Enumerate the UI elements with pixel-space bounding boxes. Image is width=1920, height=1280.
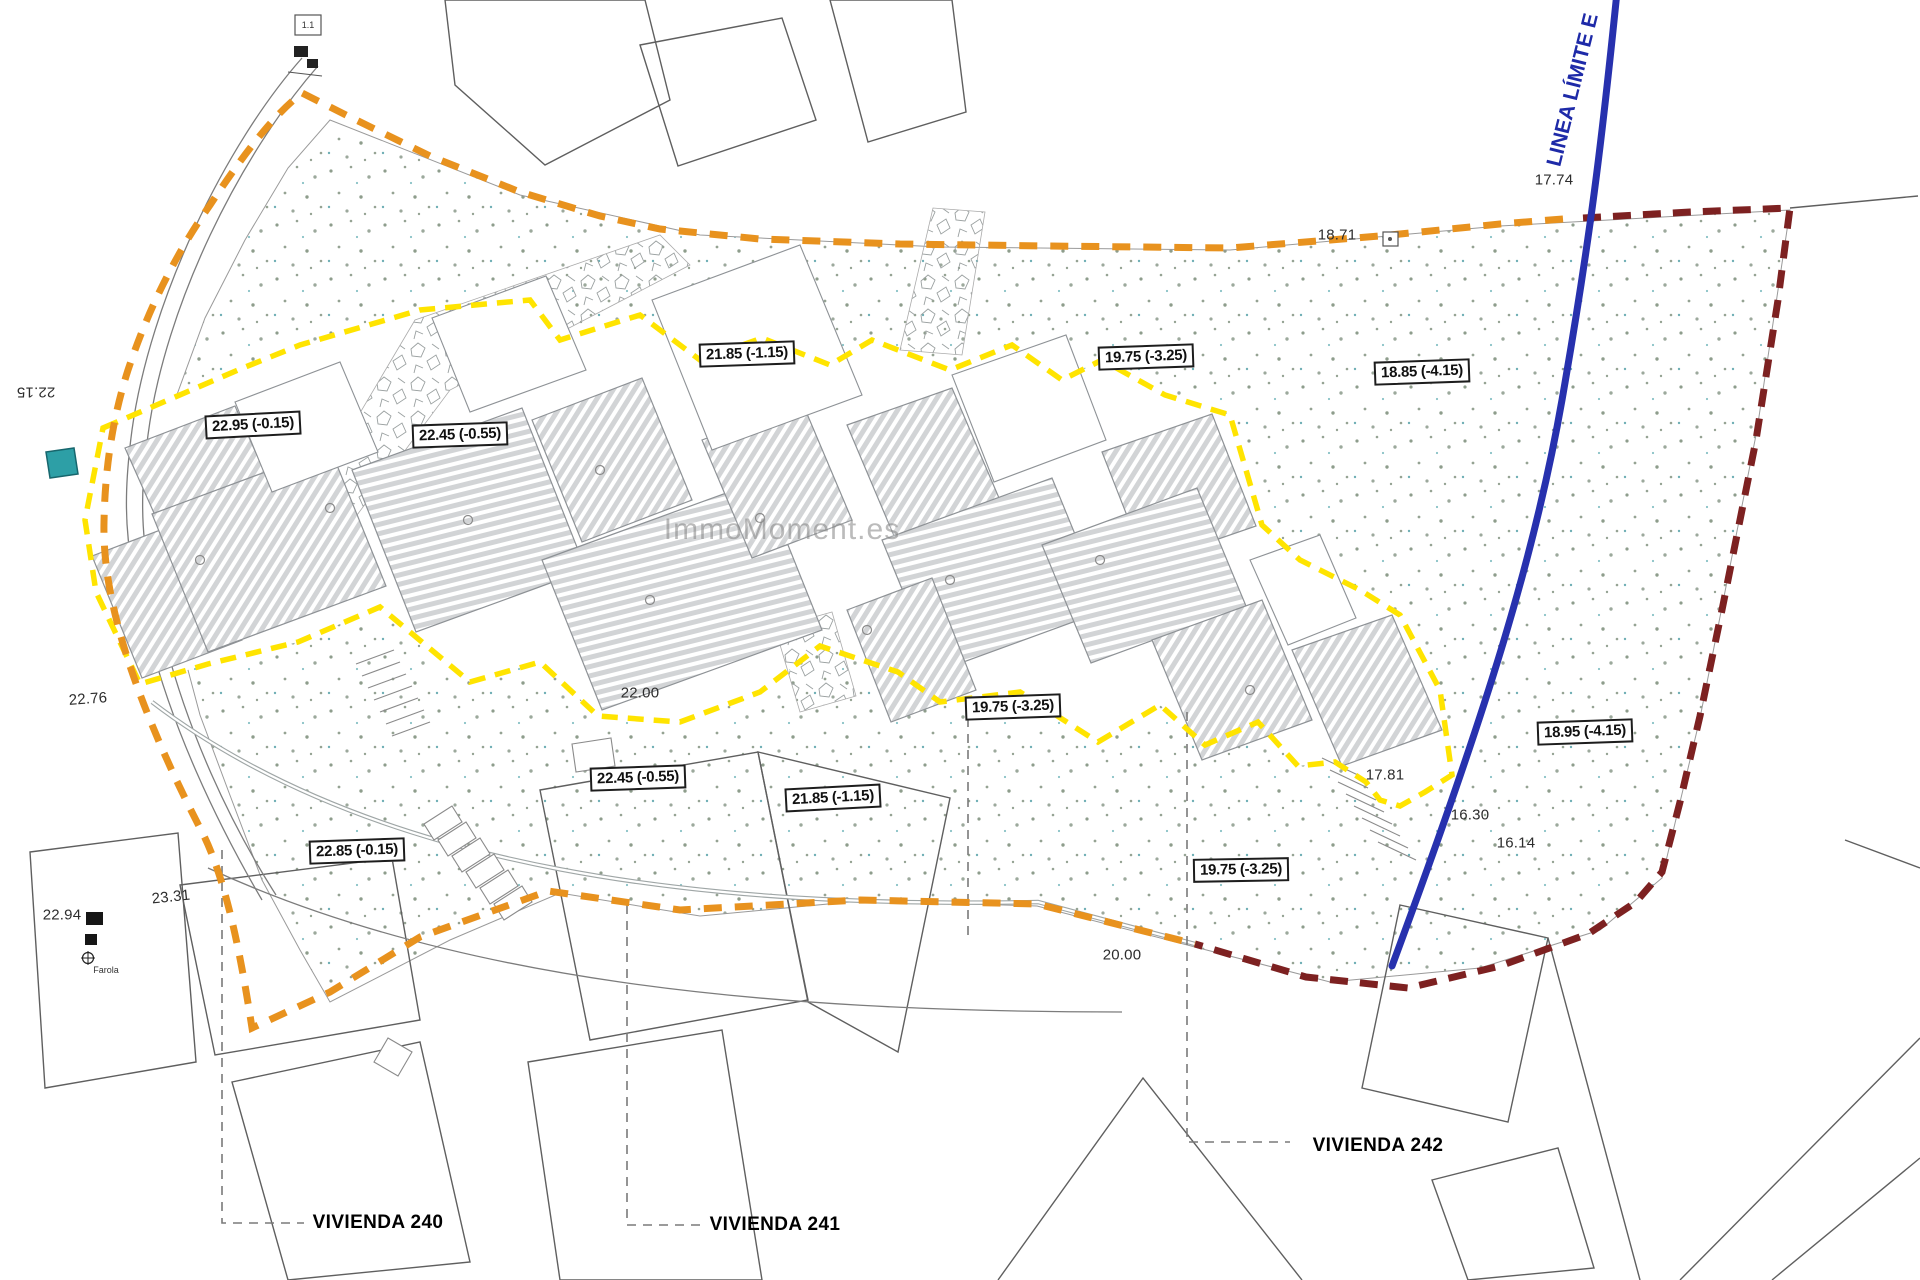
spot-elevation: 18.71 — [1318, 227, 1357, 244]
utility-icon — [86, 912, 103, 925]
elevation-label: 19.75 (-3.25) — [1098, 343, 1195, 370]
spot-elevation: 17.81 — [1366, 767, 1405, 784]
watermark: ImmoMoment.es — [664, 513, 900, 547]
elevation-label: 22.45 (-0.55) — [412, 421, 509, 448]
spot-elevation: 22.00 — [621, 685, 660, 702]
spot-elevation: 17.74 — [1535, 172, 1574, 189]
corner-marker-icon — [294, 46, 308, 57]
spot-elevation: 22.76 — [68, 689, 108, 709]
spot-elevation: 16.14 — [1497, 835, 1536, 852]
spot-elevation: 20.00 — [1103, 947, 1142, 964]
spot-elevation: 16.30 — [1451, 807, 1490, 824]
spot-elevation: 22.94 — [43, 907, 82, 924]
site-plan: 22.95 (-0.15) 22.45 (-0.55) 21.85 (-1.15… — [0, 0, 1920, 1280]
elevation-label: 18.95 (-4.15) — [1537, 718, 1634, 745]
streetlight-label: Farola — [93, 965, 119, 975]
ref-box-label: 1.1 — [302, 20, 315, 30]
site-plan-drawing — [0, 0, 1920, 1280]
elevation-label: 19.75 (-3.25) — [965, 693, 1062, 720]
elevation-label: 18.85 (-4.15) — [1374, 358, 1471, 385]
elevation-label: 19.75 (-3.25) — [1193, 857, 1289, 883]
elevation-label: 22.95 (-0.15) — [204, 411, 301, 440]
vivienda-242-label: VIVIENDA 242 — [1313, 1135, 1444, 1157]
pool — [46, 448, 78, 478]
elevation-label: 22.45 (-0.55) — [590, 764, 687, 791]
elevation-label: 21.85 (-1.15) — [699, 340, 796, 367]
vivienda-241-label: VIVIENDA 241 — [710, 1214, 841, 1236]
vivienda-240-label: VIVIENDA 240 — [313, 1212, 444, 1234]
spot-elevation: 22.15 — [17, 384, 56, 401]
elevation-label: 21.85 (-1.15) — [784, 784, 881, 813]
elevation-label: 22.85 (-0.15) — [309, 837, 406, 864]
